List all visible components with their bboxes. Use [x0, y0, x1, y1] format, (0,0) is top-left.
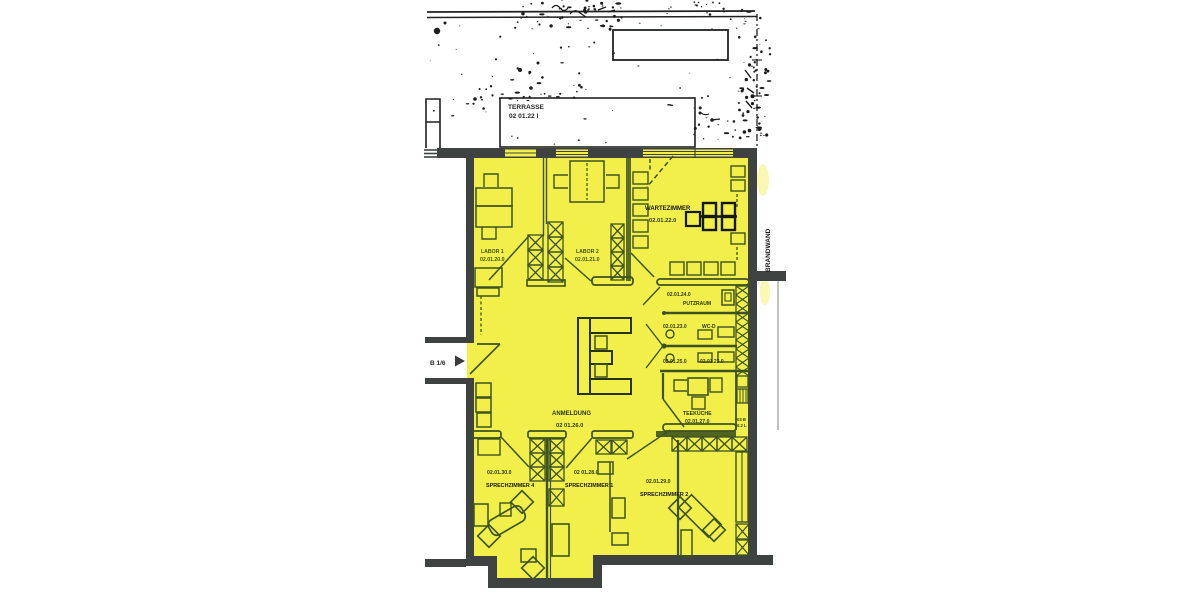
svg-text:PUTZRAUM: PUTZRAUM [683, 301, 711, 307]
svg-text:02.01.25.0: 02.01.25.0 [663, 359, 687, 365]
svg-text:02.01.23.0: 02.01.23.0 [663, 324, 687, 330]
svg-text:TERRASSE: TERRASSE [508, 104, 545, 111]
svg-text:02.01.22.0: 02.01.22.0 [649, 218, 676, 224]
svg-text:02.01.30.0: 02.01.30.0 [487, 470, 512, 476]
svg-text:02 01.28.0: 02 01.28.0 [574, 470, 599, 476]
svg-text:SPRECHZIMMER 1: SPRECHZIMMER 1 [565, 483, 613, 489]
svg-text:02 01.26.0: 02 01.26.0 [556, 423, 583, 429]
svg-text:BRANDWAND: BRANDWAND [765, 228, 772, 272]
svg-text:LABOR 2: LABOR 2 [576, 249, 599, 255]
svg-text:02.01.21.0: 02.01.21.0 [575, 257, 600, 263]
svg-text:ANMELDUNG: ANMELDUNG [552, 411, 591, 417]
svg-text:02.01.20.0: 02.01.20.0 [480, 257, 505, 263]
svg-text:B 1/6: B 1/6 [430, 360, 446, 367]
svg-text:03 B: 03 B [737, 417, 746, 422]
svg-text:0.2 L: 0.2 L [737, 423, 747, 428]
svg-text:LABOR 1: LABOR 1 [481, 249, 504, 255]
svg-text:WARTEZIMMER: WARTEZIMMER [645, 206, 691, 212]
svg-text:SPRECHZIMMER 4: SPRECHZIMMER 4 [486, 483, 534, 489]
svg-text:WC-D: WC-D [702, 324, 716, 330]
svg-text:02 01.22 I: 02 01.22 I [509, 113, 538, 120]
svg-text:02.01.29.0: 02.01.29.0 [646, 479, 671, 485]
svg-text:02.01.23.0: 02.01.23.0 [700, 359, 724, 365]
svg-text:TEEKÜCHE: TEEKÜCHE [683, 410, 712, 417]
svg-text:02.01.24.0: 02.01.24.0 [667, 292, 691, 298]
